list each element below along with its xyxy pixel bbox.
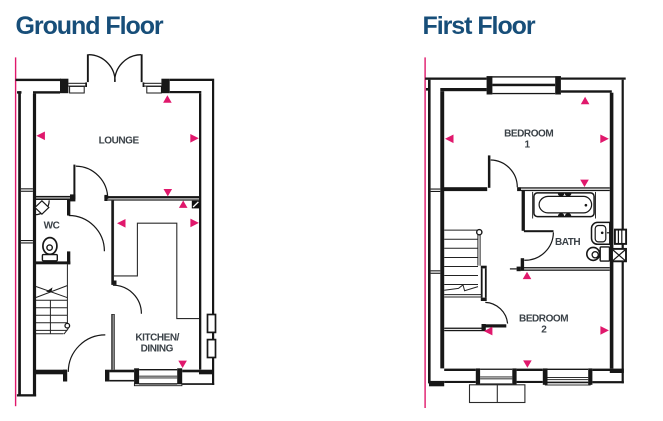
svg-text:BEDROOM: BEDROOM bbox=[519, 314, 568, 325]
svg-text:BATH: BATH bbox=[555, 237, 580, 248]
svg-text:BEDROOM: BEDROOM bbox=[504, 129, 553, 140]
svg-text:2: 2 bbox=[541, 324, 547, 335]
svg-text:1: 1 bbox=[525, 140, 531, 151]
